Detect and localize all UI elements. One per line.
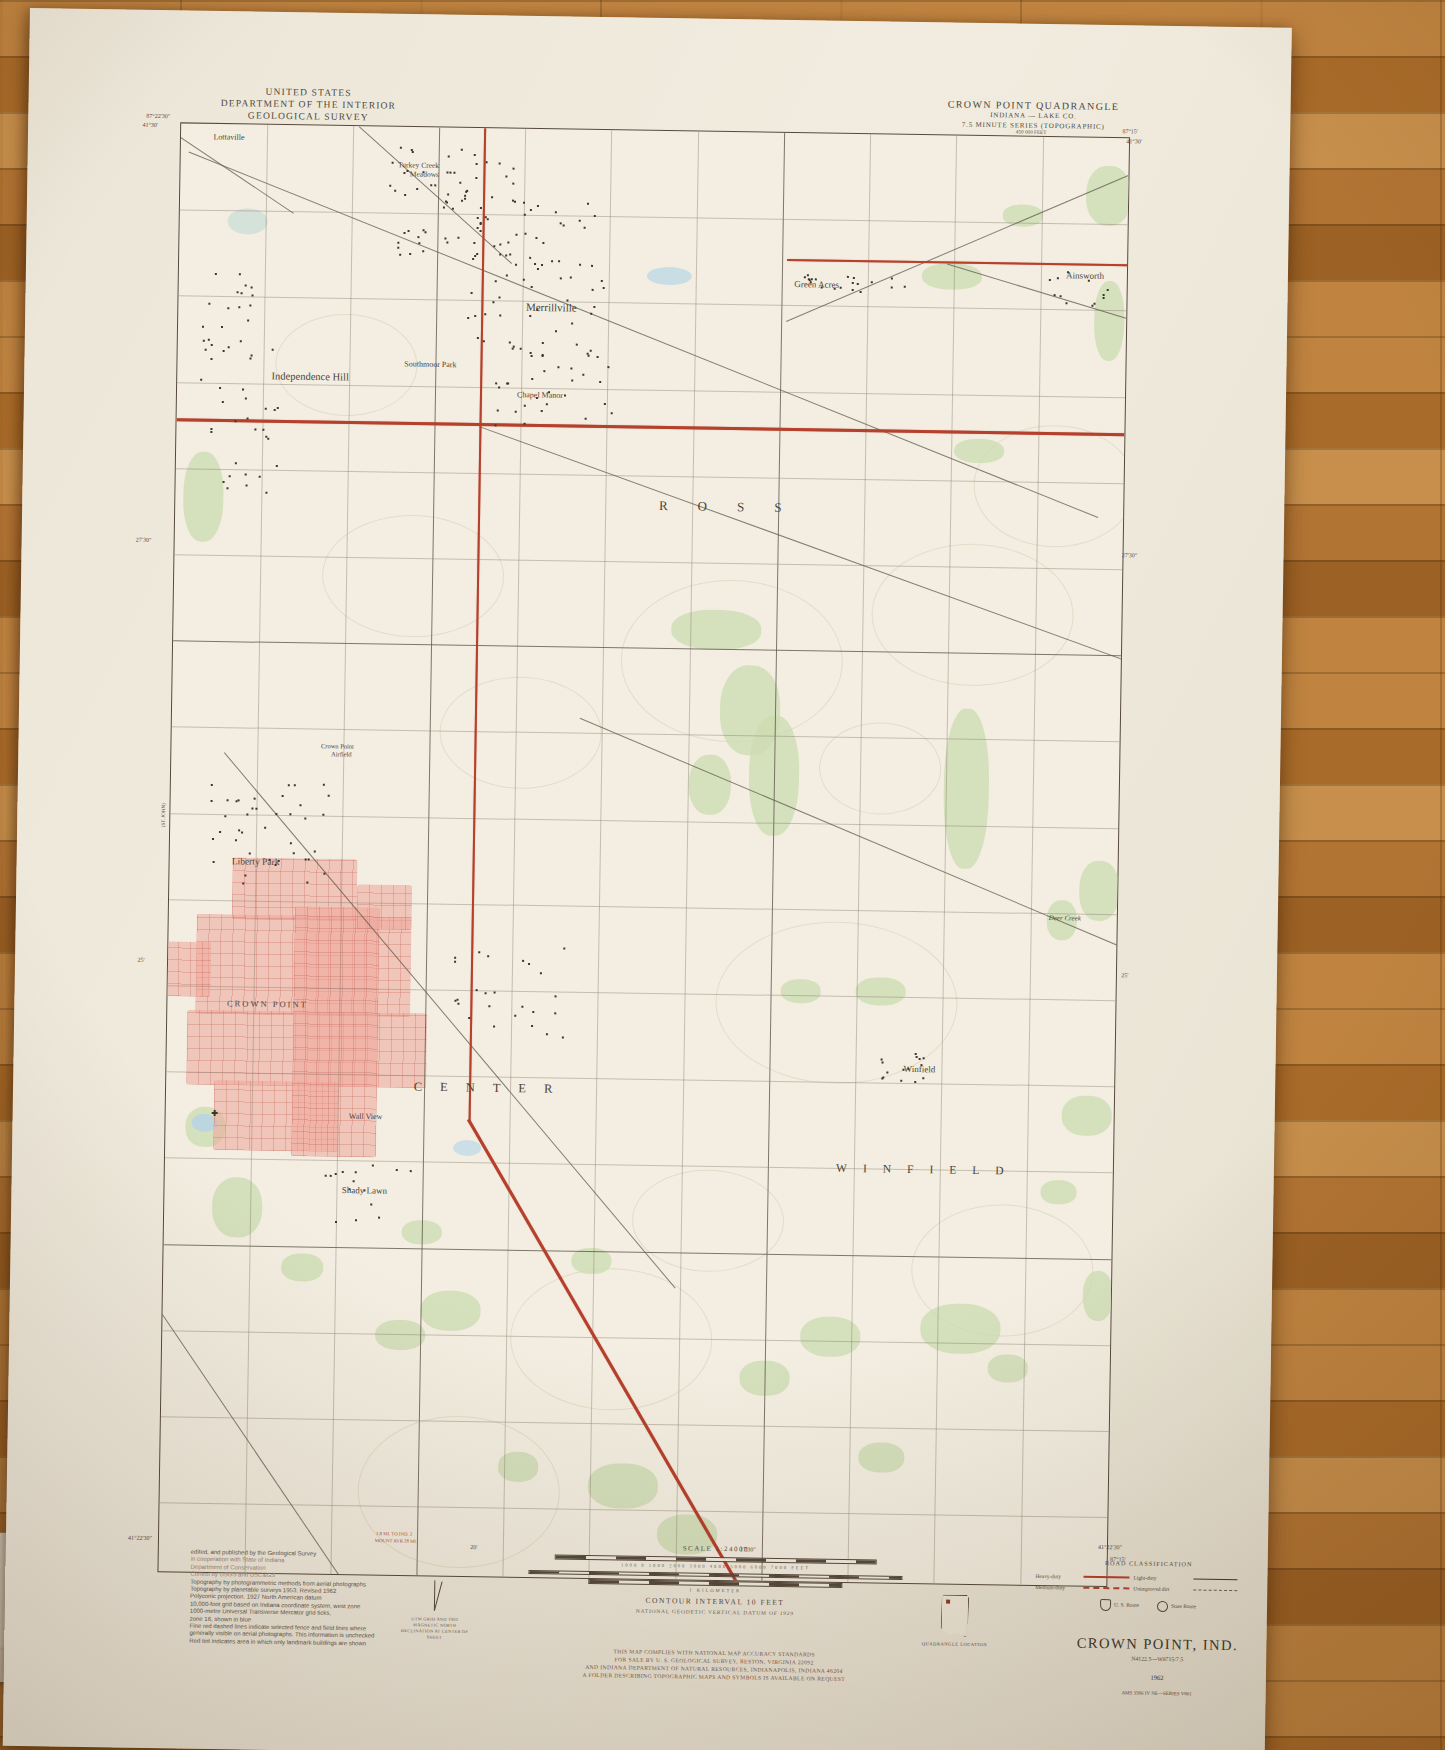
building-dot: [543, 370, 545, 372]
place-label: Liberty Park: [232, 856, 280, 867]
place-label: Merrillville: [526, 301, 577, 314]
building-dot: [324, 873, 326, 875]
route-legend-item: State Route: [1157, 1600, 1196, 1612]
urban-tint-area: [357, 884, 413, 930]
building-dot: [244, 473, 246, 475]
credits-block: edited, and published by the Geological …: [189, 1549, 490, 1650]
building-dot: [249, 357, 251, 359]
building-dot: [442, 206, 444, 208]
building-dot: [515, 263, 517, 265]
building-dot: [564, 948, 566, 950]
building-dot: [208, 303, 210, 305]
building-dot: [352, 1180, 354, 1182]
building-dot: [398, 241, 400, 243]
building-dot: [459, 182, 461, 184]
building-dot: [569, 276, 571, 278]
building-dot: [476, 177, 478, 179]
building-dot: [395, 1169, 397, 1171]
building-dot: [485, 161, 487, 163]
section-line-horizontal: [178, 295, 1126, 311]
building-dot: [454, 957, 456, 959]
building-dot: [1049, 279, 1051, 281]
building-dot: [210, 344, 212, 346]
place-label: WINFIELD: [836, 1162, 1020, 1177]
building-dot: [474, 154, 476, 156]
building-dot: [389, 184, 391, 186]
railroad-line: [786, 175, 1129, 322]
building-dot: [522, 960, 524, 962]
building-dot: [523, 278, 525, 280]
collar-coordinate-label: (ST. JOHN): [161, 803, 166, 827]
building-dot: [254, 428, 256, 430]
building-dot: [485, 992, 487, 994]
building-dot: [477, 337, 479, 339]
building-dot: [528, 963, 530, 965]
building-dot: [919, 1058, 921, 1060]
building-dot: [584, 417, 586, 419]
building-dot: [471, 292, 473, 294]
building-dot: [226, 799, 228, 801]
building-dot: [399, 254, 401, 256]
building-dot: [546, 403, 548, 405]
building-dot: [238, 307, 240, 309]
building-dot: [335, 1221, 337, 1223]
place-label: Wall View: [349, 1112, 383, 1122]
collar-coordinate-label: 25': [137, 957, 144, 963]
building-dot: [509, 253, 511, 255]
place-label: Lottaville: [213, 132, 244, 141]
woodland-patch: [588, 1463, 659, 1509]
building-dot: [1060, 295, 1062, 297]
building-dot: [571, 379, 573, 381]
building-dot: [227, 307, 229, 309]
place-label: Turkey Creek: [398, 160, 439, 170]
place-label: Airfield: [331, 750, 352, 757]
highway-us30: [177, 418, 1125, 435]
building-dot: [601, 280, 603, 282]
building-dot: [372, 1165, 374, 1167]
building-dot: [559, 277, 561, 279]
place-label: Shady Lawn: [342, 1185, 387, 1196]
building-dot: [222, 481, 224, 483]
building-dot: [590, 350, 592, 352]
building-dot: [576, 344, 578, 346]
building-dot: [546, 1033, 548, 1035]
collar-coordinate-label: 41°22'30": [1098, 1544, 1122, 1550]
building-dot: [464, 194, 466, 196]
building-dot: [300, 804, 302, 806]
building-dot: [532, 1011, 534, 1013]
collar-coordinate-label: 87°15': [1122, 128, 1138, 134]
building-dot: [246, 418, 248, 420]
building-dot: [445, 200, 447, 202]
lake: [647, 267, 692, 286]
building-dot: [495, 425, 497, 427]
building-dot: [282, 795, 284, 797]
building-dot: [887, 1071, 889, 1073]
building-dot: [923, 1077, 925, 1079]
building-dot: [570, 367, 572, 369]
woodland-patch: [1086, 166, 1130, 227]
lake: [453, 1140, 481, 1156]
quadrangle-location-label: QUADRANGLE LOCATION: [919, 1641, 989, 1647]
building-dot: [215, 273, 217, 275]
contour-line: [631, 1169, 785, 1273]
building-dot: [555, 995, 557, 997]
route-type-label: State Route: [1171, 1602, 1196, 1608]
woodland-patch: [281, 1253, 323, 1282]
road-class-swatch-gray-dash: [1193, 1589, 1237, 1591]
building-dot: [495, 382, 497, 384]
building-dot: [224, 815, 226, 817]
building-dot: [491, 196, 493, 198]
building-dot: [264, 827, 266, 829]
building-dot: [307, 882, 309, 884]
building-dot: [529, 209, 531, 211]
building-dot: [604, 403, 606, 405]
building-dot: [587, 202, 589, 204]
building-dot: [417, 236, 419, 238]
building-dot: [599, 381, 601, 383]
collar-coordinate-label: 20': [470, 1544, 477, 1550]
building-dot: [229, 475, 231, 477]
building-dot: [410, 1170, 412, 1172]
building-dot: [531, 1025, 533, 1027]
building-dot: [529, 257, 531, 259]
place-label: Meadows: [410, 169, 439, 178]
scale-block: SCALE 1:24000 1000 0 1000 2000 3000 4000…: [525, 1542, 906, 1595]
woodland-patch: [922, 263, 982, 290]
building-dot: [541, 342, 543, 344]
building-dot: [210, 358, 212, 360]
compliance-text-block: THIS MAP COMPLIES WITH NATIONAL MAP ACCU…: [434, 1645, 994, 1686]
railroad-line: [169, 129, 294, 213]
woodland-patch: [988, 1354, 1028, 1383]
scale-bar-feet: [528, 1570, 902, 1580]
building-dot: [267, 438, 269, 440]
collar-coordinate-label: MOUNT AYR 28 MI.: [375, 1538, 417, 1544]
building-dot: [493, 1025, 495, 1027]
road-classification-box: ROAD CLASSIFICATION Heavy-dutyLight-duty…: [1035, 1558, 1262, 1614]
building-dot: [399, 147, 401, 149]
building-dot: [571, 323, 573, 325]
building-dot: [277, 407, 279, 409]
building-dot: [484, 313, 486, 315]
building-dot: [506, 275, 508, 277]
building-dot: [499, 386, 501, 388]
building-dot: [244, 397, 246, 399]
building-dot: [241, 293, 243, 295]
woodland-patch: [780, 979, 820, 1004]
map-year: 1962: [1044, 1672, 1270, 1683]
woodland-patch: [183, 451, 224, 542]
building-dot: [447, 194, 449, 196]
building-dot: [461, 148, 463, 150]
building-dot: [882, 1077, 884, 1079]
section-line-horizontal: [180, 209, 1128, 225]
building-dot: [404, 232, 406, 234]
road-class-label: Unimproved dirt: [1133, 1586, 1189, 1593]
collar-coordinate-label: 41°30': [1126, 138, 1142, 144]
building-dot: [272, 349, 274, 351]
building-dot: [541, 410, 543, 412]
building-dot: [847, 276, 849, 278]
building-dot: [247, 320, 249, 322]
building-dot: [457, 237, 459, 239]
place-label: ROSS: [659, 498, 812, 516]
road-classification-title: ROAD CLASSIFICATION: [1036, 1558, 1262, 1569]
building-dot: [514, 201, 516, 203]
building-dot: [241, 831, 243, 833]
road-class-swatch-red-dash: [1083, 1587, 1129, 1590]
building-dot: [587, 354, 589, 356]
building-dot: [852, 282, 854, 284]
building-dot: [540, 972, 542, 974]
building-dot: [424, 231, 426, 233]
building-dot: [537, 205, 539, 207]
building-dot: [890, 286, 892, 288]
building-dot: [455, 960, 457, 962]
building-dot: [513, 167, 515, 169]
woodland-patch: [920, 1303, 1001, 1354]
building-dot: [477, 227, 479, 229]
building-dot: [263, 428, 265, 430]
building-dot: [523, 202, 525, 204]
building-dot: [226, 487, 228, 489]
building-dot: [475, 315, 477, 317]
building-dot: [252, 808, 254, 810]
building-dot: [239, 340, 241, 342]
building-dot: [290, 843, 292, 845]
building-dot: [475, 990, 477, 992]
building-dot: [524, 232, 526, 234]
building-dot: [308, 858, 310, 860]
building-dot: [562, 224, 564, 226]
building-dot: [467, 190, 469, 192]
building-dot: [305, 858, 307, 860]
building-dot: [530, 352, 532, 354]
road-class-label: Light-duty: [1133, 1575, 1189, 1582]
building-dot: [591, 264, 593, 266]
building-dot: [479, 207, 481, 209]
building-dot: [219, 387, 221, 389]
building-dot: [235, 462, 237, 464]
collar-coordinate-label: 1.8 MI. TO IND. 2: [376, 1531, 412, 1537]
building-dot: [210, 431, 212, 433]
section-line-vertical: [416, 127, 440, 1575]
building-dot: [551, 260, 553, 262]
building-dot: [564, 395, 566, 397]
building-dot: [473, 242, 475, 244]
place-label: Winfield: [904, 1064, 936, 1074]
building-dot: [222, 401, 224, 403]
building-dot: [497, 409, 499, 411]
building-dot: [453, 172, 455, 174]
building-dot: [208, 339, 210, 341]
building-dot: [590, 313, 592, 315]
building-dot: [461, 199, 463, 201]
building-dot: [223, 350, 225, 352]
building-dot: [293, 785, 295, 787]
building-dot: [804, 276, 806, 278]
map-title-block: CROWN POINT, IND. N4122.5—W8715/7.5 1962…: [1044, 1634, 1271, 1698]
building-dot: [1053, 294, 1055, 296]
indiana-state-outline-icon: [941, 1595, 970, 1637]
building-dot: [900, 1080, 902, 1082]
building-dot: [476, 253, 478, 255]
building-dot: [860, 291, 862, 293]
route-marker-legend: U. S. RouteState Route: [1035, 1598, 1261, 1614]
building-dot: [499, 297, 501, 299]
building-dot: [200, 379, 202, 381]
building-dot: [423, 230, 425, 232]
building-dot: [499, 253, 501, 255]
building-dot: [514, 1014, 516, 1016]
contour-line: [714, 920, 959, 1086]
building-dot: [239, 273, 241, 275]
place-label: Independence Hill: [272, 370, 349, 382]
woodland-patch: [1094, 281, 1125, 361]
building-dot: [210, 784, 212, 786]
place-label: Green Acres: [794, 279, 839, 290]
building-dot: [446, 171, 448, 173]
building-dot: [495, 281, 497, 283]
scale-bar-km-label: 1 KILOMETER: [525, 1584, 905, 1595]
building-dot: [404, 194, 406, 196]
building-dot: [516, 234, 518, 236]
building-dot: [500, 244, 502, 246]
building-dot: [447, 242, 449, 244]
building-dot: [523, 423, 525, 425]
building-dot: [476, 217, 478, 219]
building-dot: [594, 215, 596, 217]
railroad-line: [160, 1311, 346, 1585]
building-dot: [265, 408, 267, 410]
building-dot: [871, 281, 873, 283]
building-dot: [541, 264, 543, 266]
building-dot: [840, 287, 842, 289]
collar-coordinate-label: 41°22'30": [128, 1535, 152, 1541]
place-label: Ainsworth: [1066, 270, 1104, 281]
woodland-patch: [1061, 1095, 1112, 1136]
building-dot: [276, 465, 278, 467]
building-dot: [891, 278, 893, 280]
building-dot: [611, 412, 613, 414]
contour-line: [818, 721, 941, 815]
building-dot: [515, 410, 517, 412]
usgs-header: UNITED STATES DEPARTMENT OF THE INTERIOR…: [158, 84, 459, 125]
road-class-label: Heavy-duty: [1035, 1573, 1079, 1580]
contour-line: [275, 313, 419, 417]
building-dot: [483, 340, 485, 342]
building-dot: [430, 185, 432, 187]
building-dot: [355, 1171, 357, 1173]
building-dot: [334, 1173, 336, 1175]
woodland-patch: [671, 609, 762, 650]
building-dot: [478, 951, 480, 953]
building-dot: [531, 285, 533, 287]
route-legend-item: U. S. Route: [1100, 1599, 1139, 1612]
building-dot: [251, 286, 253, 288]
building-dot: [398, 247, 400, 249]
building-dot: [1094, 303, 1096, 305]
contour-line: [870, 542, 1074, 687]
building-dot: [409, 253, 411, 255]
woodland-patch: [855, 977, 905, 1006]
place-label: Crown Point: [321, 742, 354, 750]
building-dot: [535, 237, 537, 239]
building-dot: [457, 1003, 459, 1005]
building-dot: [205, 349, 207, 351]
building-dot: [314, 850, 316, 852]
building-dot: [235, 839, 237, 841]
building-dot: [915, 1053, 917, 1055]
building-dot: [541, 354, 543, 356]
woodland-patch: [420, 1290, 481, 1331]
woodland-patch: [1040, 1180, 1076, 1205]
building-dot: [506, 382, 508, 384]
building-dot: [411, 149, 413, 151]
building-dot: [422, 250, 424, 252]
building-dot: [416, 188, 418, 190]
building-dot: [474, 255, 476, 257]
building-dot: [592, 289, 594, 291]
building-dot: [915, 1056, 917, 1058]
building-dot: [418, 242, 420, 244]
building-dot: [524, 405, 526, 407]
building-dot: [329, 1175, 331, 1177]
building-dot: [304, 818, 306, 820]
building-dot: [519, 348, 521, 350]
building-dot: [555, 330, 557, 332]
building-dot: [505, 176, 507, 178]
building-dot: [406, 170, 408, 172]
building-dot: [202, 326, 204, 328]
building-dot: [392, 162, 394, 164]
woodland-patch: [212, 1177, 263, 1238]
woodland-patch: [1079, 861, 1120, 922]
building-dot: [856, 283, 858, 285]
building-dot: [245, 875, 247, 877]
building-dot: [531, 355, 533, 357]
road-class-swatch-red-solid: [1083, 1576, 1129, 1579]
highway-in55: [469, 128, 487, 1123]
building-dot: [219, 832, 221, 834]
building-dot: [213, 861, 215, 863]
building-dot: [488, 1006, 490, 1008]
building-dot: [904, 286, 906, 288]
building-dot: [584, 226, 586, 228]
building-dot: [246, 485, 248, 487]
building-dot: [1066, 303, 1068, 305]
building-dot: [607, 366, 609, 368]
building-dot: [472, 258, 474, 260]
building-dot: [324, 1175, 326, 1177]
building-dot: [522, 1006, 524, 1008]
state-circle-icon: [1157, 1600, 1168, 1611]
building-dot: [582, 373, 584, 375]
building-dot: [322, 814, 324, 816]
building-dot: [210, 428, 212, 430]
building-dot: [485, 217, 487, 219]
building-dot: [494, 992, 496, 994]
building-dot: [249, 853, 251, 855]
collar-coordinate-label: 87°22'30": [146, 113, 170, 119]
building-dot: [455, 1000, 457, 1002]
urban-tint-area: [165, 941, 211, 997]
building-dot: [498, 162, 500, 164]
building-dot: [407, 230, 409, 232]
